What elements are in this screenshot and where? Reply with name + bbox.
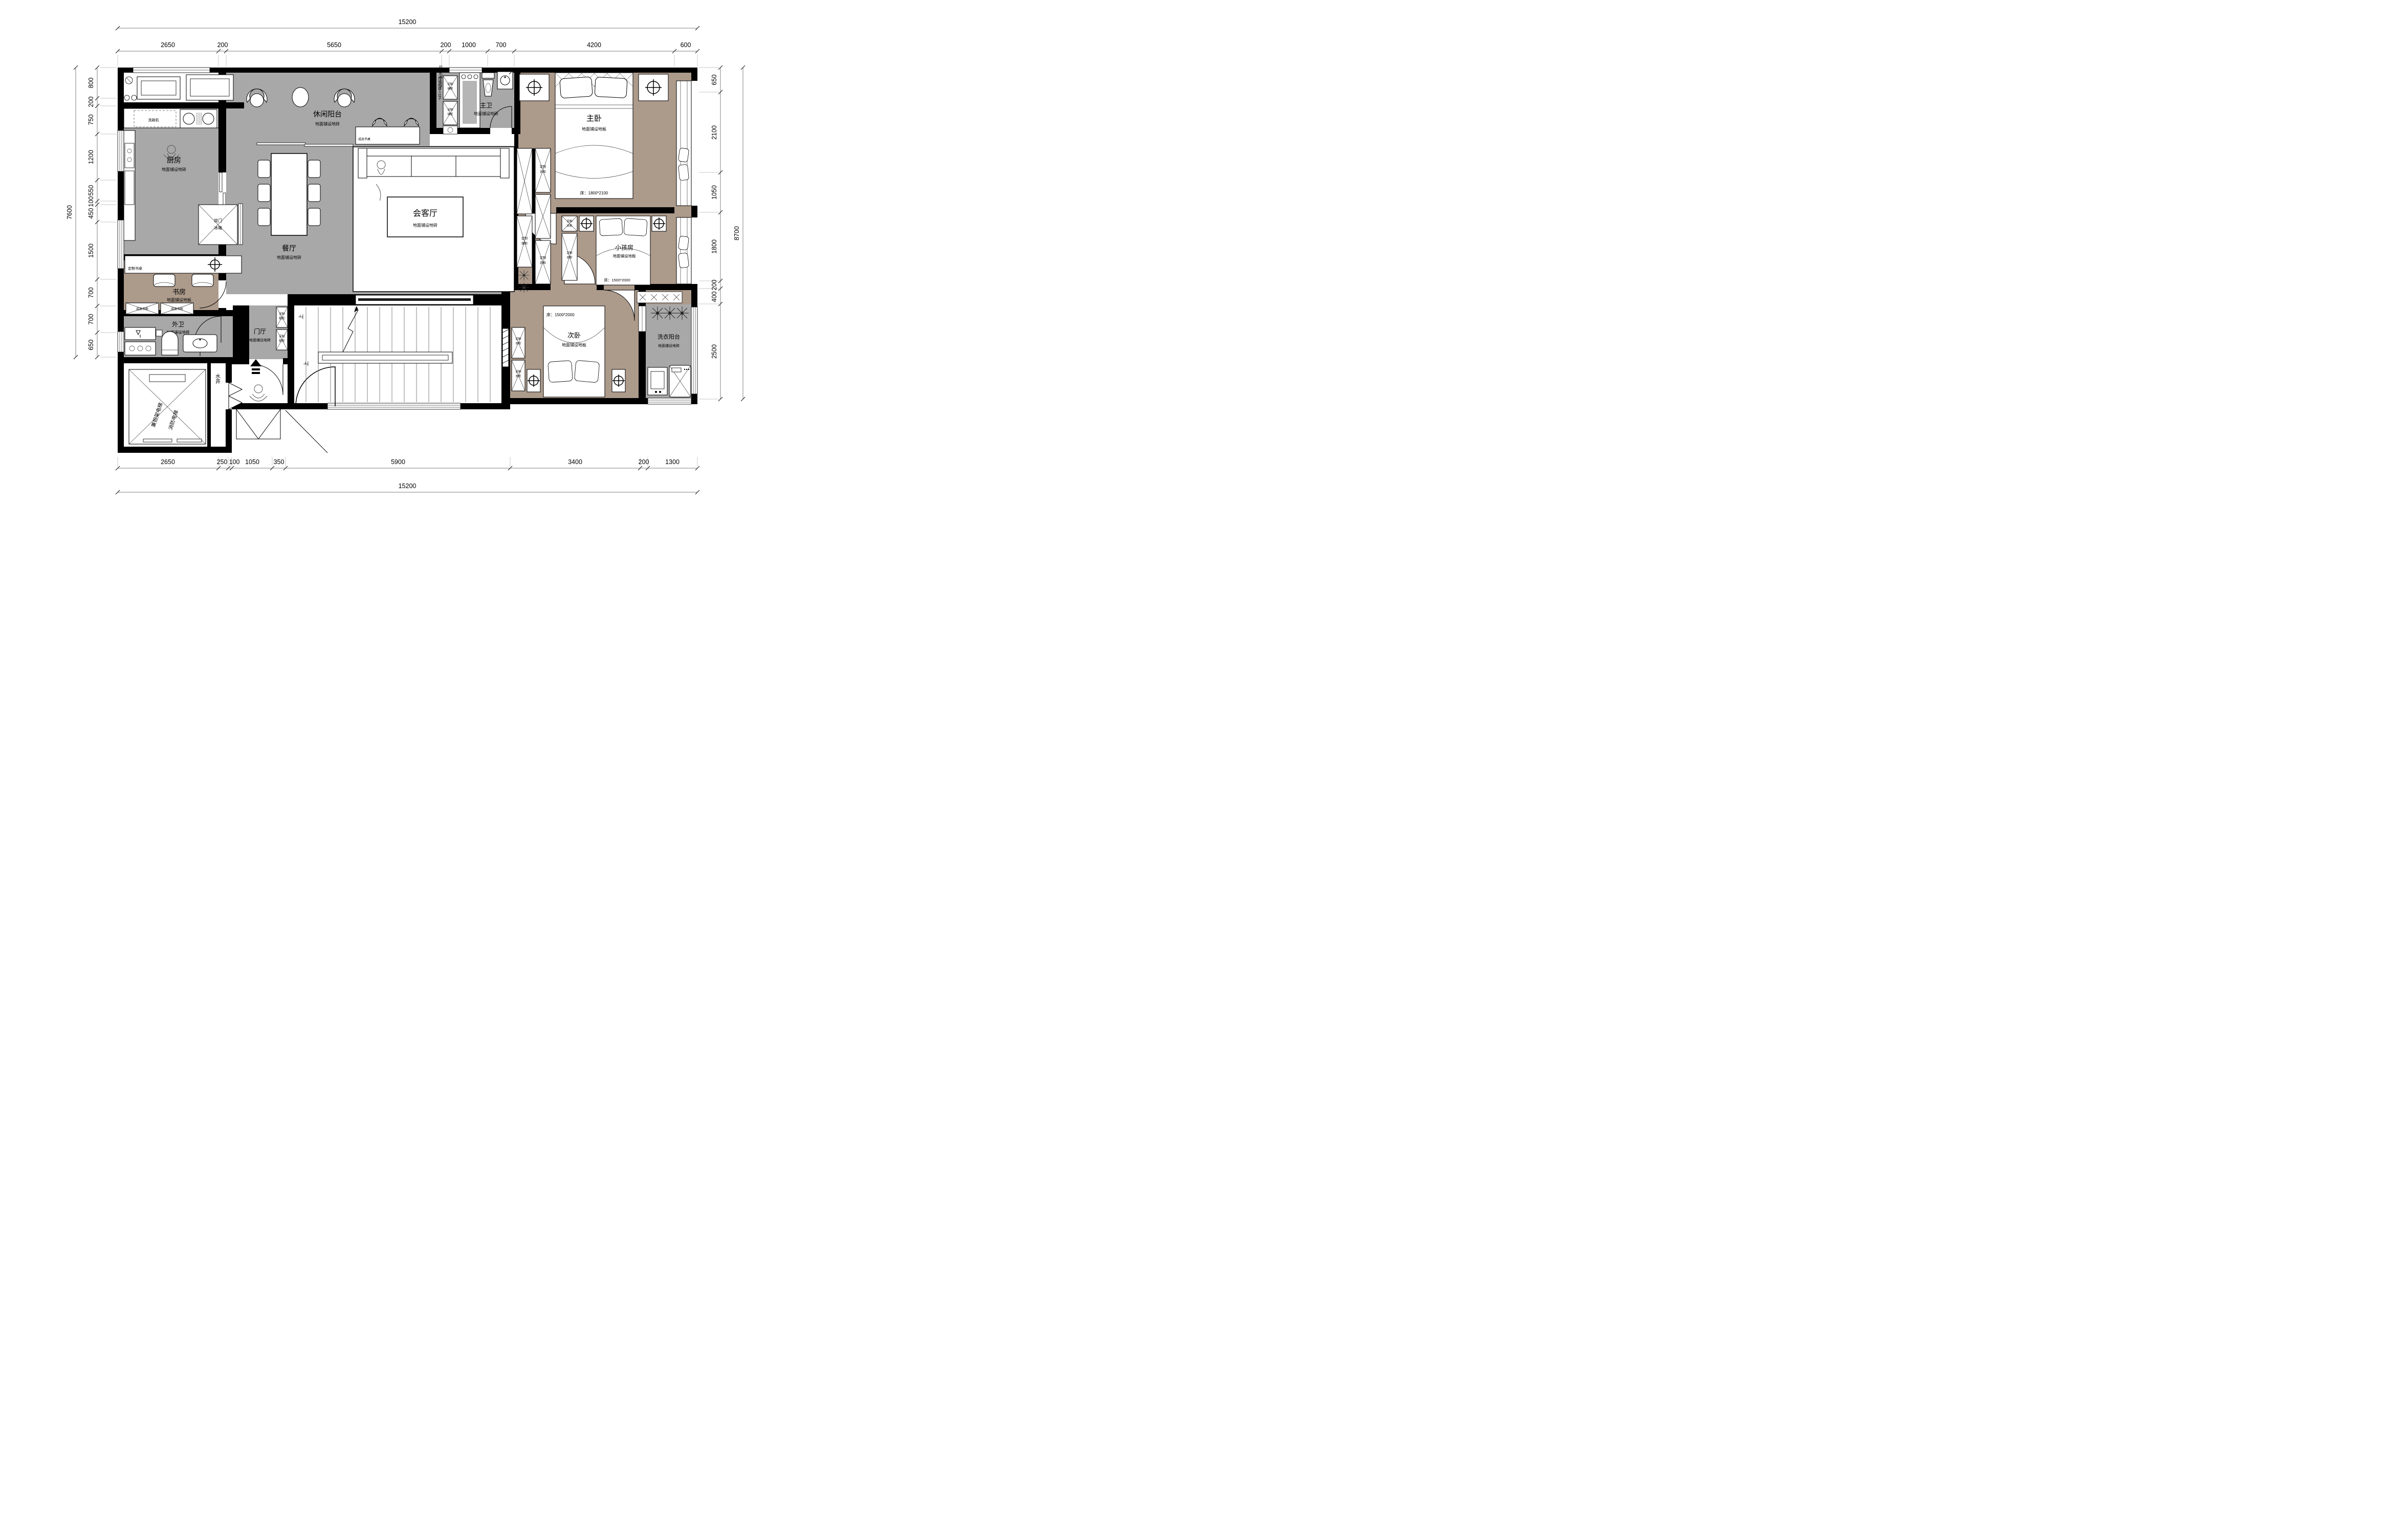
dim: 700 bbox=[87, 314, 95, 325]
second-bed: 床：1500*2000 次卧 地面铺设地板 bbox=[543, 306, 605, 397]
wardrobe-label: 定制 bbox=[566, 251, 573, 255]
room-name: 书房 bbox=[172, 288, 186, 296]
stair-direction-arrow bbox=[343, 306, 358, 352]
room-floor: 地面铺设地板 bbox=[582, 126, 606, 131]
bookcase-label: 成品书柜 bbox=[136, 307, 148, 311]
floor-plan-page: 洗碗机 双门 冰箱 厨房 地面铺设地砖 休 bbox=[0, 0, 803, 513]
room-floor: 地面铺设地板 bbox=[562, 342, 586, 347]
room-floor: 地面铺设地砖 bbox=[413, 223, 437, 228]
storage-label: 定制 bbox=[447, 82, 453, 86]
bed-size: 床：1500*2000 bbox=[604, 277, 630, 282]
laundry-sink-icon bbox=[648, 367, 667, 395]
dim: 4200 bbox=[587, 41, 601, 49]
dimensions-left: 800 200 750 1200 550 100 450 1500 700 70… bbox=[66, 65, 117, 359]
dim: 650 bbox=[87, 340, 95, 350]
window-study-left bbox=[118, 220, 124, 269]
dim: 450 bbox=[87, 208, 95, 219]
dim: 750 bbox=[87, 115, 95, 125]
water-well-label: 水井 bbox=[214, 373, 221, 384]
wardrobe-label: 衣柜 bbox=[515, 374, 521, 378]
living-room: 成品书桌 会客厅 地面铺设地砖 bbox=[353, 118, 514, 292]
bed-size: 床：1800*2100 bbox=[580, 190, 608, 195]
dim-overall: 15200 bbox=[399, 482, 417, 490]
window-guestbath-left bbox=[118, 332, 124, 352]
dim: 1800 bbox=[711, 239, 718, 254]
dim: 1500 bbox=[87, 244, 95, 258]
utility-room bbox=[124, 75, 233, 100]
dim: 700 bbox=[496, 41, 507, 49]
wardrobe-label: 定制 bbox=[566, 219, 573, 223]
shoe-label: 鞋柜 bbox=[279, 316, 285, 320]
floor-plan-drawing: 洗碗机 双门 冰箱 厨房 地面铺设地砖 休 bbox=[0, 0, 803, 513]
flower-bed bbox=[637, 292, 682, 303]
stove-icon bbox=[180, 109, 217, 128]
dim: 200 bbox=[87, 97, 95, 107]
room-floor: 地面铺设地板 bbox=[613, 253, 636, 258]
stairwell: 上 上 bbox=[298, 306, 509, 402]
entry-arrow-icon bbox=[250, 359, 261, 374]
dim-overall: 8700 bbox=[733, 226, 740, 240]
room-name: 主卫 bbox=[480, 102, 492, 109]
window-stair-south bbox=[327, 403, 461, 409]
wall-hatch bbox=[502, 328, 509, 367]
dim: 2650 bbox=[161, 41, 175, 49]
room-floor: 地面铺设地砖 bbox=[474, 111, 498, 116]
nightstand-right bbox=[639, 74, 668, 101]
dim: 1050 bbox=[245, 458, 259, 466]
wardrobe-label: 衣柜 bbox=[540, 261, 546, 265]
window-laundry-right bbox=[691, 307, 697, 394]
room-name: 小孩房 bbox=[615, 244, 633, 251]
wardrobe-label: 定制 bbox=[515, 369, 521, 373]
dim: 550 bbox=[87, 185, 95, 196]
dim: 400 bbox=[711, 292, 718, 302]
room-name: 主卧 bbox=[586, 114, 602, 123]
dim: 2100 bbox=[711, 125, 718, 140]
dim: 200 bbox=[441, 41, 451, 49]
stair-up-label: 上 bbox=[298, 314, 304, 319]
window-utility-top bbox=[133, 68, 210, 73]
wardrobe-label: 衣柜 bbox=[566, 255, 573, 259]
wardrobe-label: 定制 bbox=[540, 165, 546, 169]
door-stair bbox=[296, 367, 335, 406]
room-name: 门厅 bbox=[254, 327, 266, 335]
dim: 1050 bbox=[711, 185, 718, 200]
toilet-icon-guest bbox=[162, 332, 178, 355]
room-name: 休闲阳台 bbox=[313, 110, 342, 118]
master-bed: 主卧 地面铺设地板 床：1800*2100 bbox=[555, 73, 633, 199]
fridge-label-1: 双门 bbox=[214, 218, 222, 223]
room-floor: 地面铺设地砖 bbox=[277, 255, 301, 260]
dim: 200 bbox=[639, 458, 649, 466]
storage-label: 储柜 bbox=[447, 86, 453, 91]
room-name: 洗衣阳台 bbox=[658, 333, 680, 340]
dim: 700 bbox=[87, 288, 95, 298]
dimensions-top: 2650 200 5650 200 1000 700 4200 600 1520… bbox=[116, 18, 699, 67]
dim: 800 bbox=[87, 78, 95, 89]
dim: 2500 bbox=[711, 344, 718, 359]
storage-label: 储柜 bbox=[447, 112, 453, 116]
dimensions-bottom: 2650 250 100 1050 350 5900 3400 200 1300… bbox=[116, 457, 699, 494]
dim: 650 bbox=[711, 75, 718, 85]
shoe-label: 定制 bbox=[279, 334, 285, 338]
window-kitchen-left bbox=[118, 130, 124, 171]
lower-door-triangles bbox=[236, 409, 327, 453]
sink-icon-master bbox=[497, 72, 513, 89]
storage-label: 定制 bbox=[521, 236, 528, 240]
nightstand-left bbox=[519, 74, 549, 101]
dishwasher-label: 洗碗机 bbox=[148, 118, 159, 122]
washer-icon bbox=[669, 365, 691, 397]
shower-icon bbox=[459, 73, 480, 128]
custom-desk-label: 定制书桌 bbox=[128, 266, 142, 271]
dim: 1200 bbox=[87, 150, 95, 164]
fridge-label-2: 冰箱 bbox=[214, 225, 222, 230]
shoe-label: 鞋柜 bbox=[279, 339, 285, 343]
kids-bed: 小孩房 地面铺设地板 床：1500*2000 bbox=[596, 216, 650, 285]
bookcase-label: 成品书柜 bbox=[171, 307, 183, 311]
dim: 600 bbox=[681, 41, 691, 49]
bay-window-kids bbox=[676, 217, 691, 284]
bay-window-master bbox=[676, 81, 691, 206]
room-floor: 地面铺设地砖 bbox=[162, 167, 186, 172]
room-name: 会客厅 bbox=[413, 209, 437, 218]
room-name: 次卧 bbox=[567, 332, 581, 339]
wardrobe-label: 衣柜 bbox=[566, 224, 573, 228]
room-floor: 地面铺设地板 bbox=[167, 297, 191, 302]
dim: 1000 bbox=[462, 41, 476, 49]
shoe-label: 定制 bbox=[279, 312, 285, 316]
wardrobe-label: 定制 bbox=[540, 256, 546, 260]
room-floor: 地面铺设地砖 bbox=[658, 343, 680, 348]
wardrobe-label: 衣柜 bbox=[540, 170, 546, 174]
wardrobe-label: 衣柜 bbox=[515, 341, 521, 345]
dim: 100 bbox=[229, 458, 240, 466]
window-laundry-bottom bbox=[648, 398, 691, 404]
dim: 350 bbox=[274, 458, 284, 466]
elevator-block: 兼担架电梯 消防电梯 水井 bbox=[129, 369, 242, 444]
ready-desk-label: 成品书桌 bbox=[358, 137, 370, 141]
stair-up-label: 上 bbox=[303, 361, 310, 366]
room-name: 厨房 bbox=[167, 156, 181, 164]
dim-overall: 7600 bbox=[66, 205, 73, 219]
bed-size: 床：1500*2000 bbox=[546, 312, 575, 317]
dimensions-right: 650 2100 1050 1800 200 400 2500 8700 bbox=[699, 65, 745, 401]
window-masterbath-top bbox=[449, 68, 482, 73]
storage-label: 定制 bbox=[447, 107, 453, 112]
fridge-icon: 双门 冰箱 bbox=[199, 204, 243, 245]
dim-overall: 15200 bbox=[399, 18, 417, 26]
dim: 5650 bbox=[327, 41, 341, 49]
dim: 2650 bbox=[161, 458, 175, 466]
dim: 100 bbox=[87, 196, 95, 207]
room-floor: 地面铺设地砖 bbox=[249, 338, 271, 342]
living-label-box: 会客厅 地面铺设地砖 bbox=[387, 197, 463, 237]
storage-label: 储柜 bbox=[521, 241, 528, 246]
sliding-door-laundry bbox=[639, 306, 646, 332]
room-floor: 地面铺设地砖 bbox=[315, 121, 340, 126]
wardrobe-label: 定制 bbox=[515, 337, 521, 341]
dim: 5900 bbox=[391, 458, 405, 466]
dim: 1300 bbox=[665, 458, 680, 466]
dim: 200 bbox=[217, 41, 228, 49]
room-name: 外卫 bbox=[172, 321, 184, 328]
dim: 250 bbox=[217, 458, 228, 466]
dim: 3400 bbox=[568, 458, 582, 466]
person-entry-icon bbox=[250, 385, 267, 401]
dim: 200 bbox=[711, 280, 718, 291]
room-name: 餐厅 bbox=[282, 244, 296, 252]
